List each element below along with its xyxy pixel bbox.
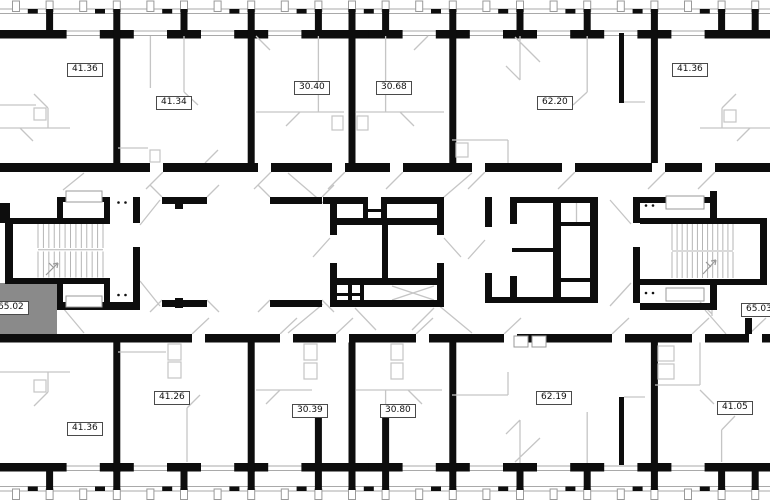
unit-area-label[interactable]: 41.05 <box>717 401 753 415</box>
unit-area-label[interactable]: 41.34 <box>156 96 192 110</box>
unit-area-label[interactable]: 41.36 <box>67 422 103 436</box>
floor-plan-drawing <box>0 0 770 500</box>
unit-area-label[interactable]: 41.26 <box>154 391 190 405</box>
unit-area-label[interactable]: 30.80 <box>380 404 416 418</box>
elevator-core-a <box>323 197 444 307</box>
unit-area-label[interactable]: 30.39 <box>292 404 328 418</box>
unit-area-label[interactable]: 30.68 <box>376 81 412 95</box>
unit-area-label[interactable]: 41.36 <box>67 63 103 77</box>
stair-direction-arrows <box>46 260 716 275</box>
floor-plan: 41.3641.3430.4030.6862.2041.3665.0265.03… <box>0 0 770 500</box>
unit-area-label[interactable]: 30.40 <box>294 81 330 95</box>
corridor-door-openings <box>150 163 762 343</box>
unit-area-label[interactable]: 62.19 <box>536 391 572 405</box>
unit-area-label[interactable]: 41.36 <box>672 63 708 77</box>
unit-area-label[interactable]: 62.20 <box>537 96 573 110</box>
unit-area-label[interactable]: 65.03 <box>741 303 770 317</box>
unit-area-label-selected[interactable]: 65.02 <box>0 301 29 315</box>
elevator-core-b <box>485 197 598 303</box>
